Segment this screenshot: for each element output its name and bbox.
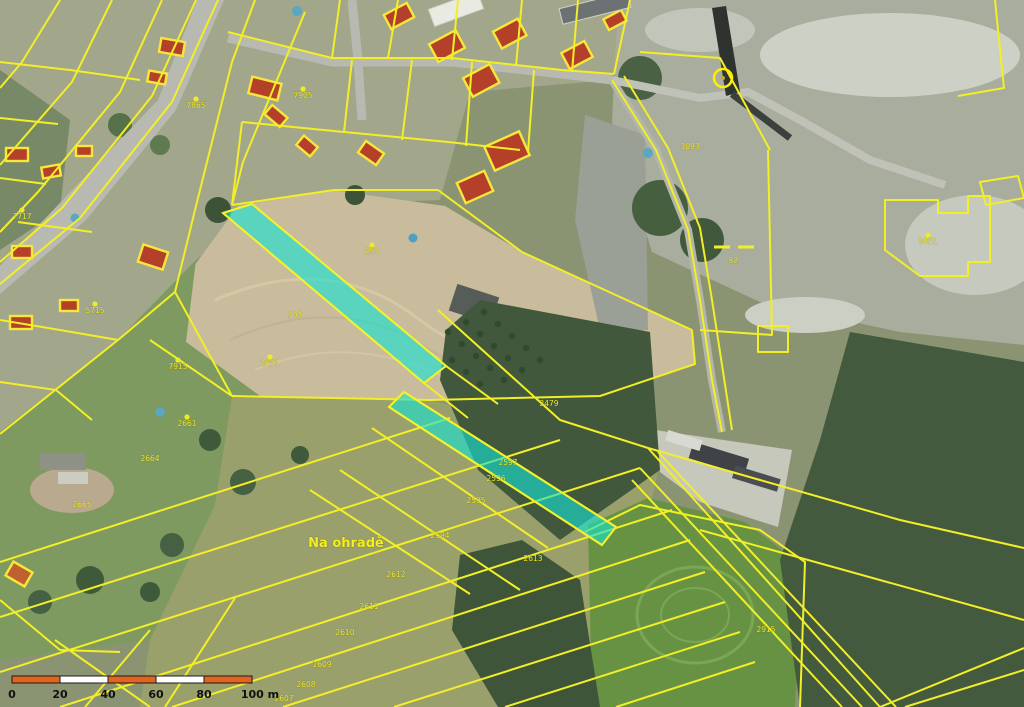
parcel-number-label: 2611 (359, 602, 378, 611)
parcel-number-label: 2915 (756, 625, 775, 634)
scale-bar-tick-label: 20 (52, 688, 68, 701)
parcel-number-label: 2664 (140, 454, 159, 463)
parcel-number-label: 2597 (498, 458, 517, 467)
aerial-photo-layer (0, 0, 1024, 707)
scale-bar-tick-label: 40 (100, 688, 116, 701)
scale-bar-unit-label: 100 m (241, 688, 279, 701)
parcel-number-label: 2596 (486, 474, 505, 483)
map-viewport[interactable]: 7865790577175715791525326312661266426653… (0, 0, 1024, 707)
field-name-label: Na ohradě (308, 536, 384, 551)
parcel-number-label: 7915 (168, 362, 187, 371)
parcel-number-label: 2609 (312, 660, 331, 669)
parcel-number-label: 5715 (85, 306, 104, 315)
parcel-number-label: 2594 (430, 531, 449, 540)
parcel-number-label: 7905 (293, 91, 312, 100)
scale-bar-segment (156, 676, 204, 683)
parcel-number-label: 3051 (918, 237, 937, 246)
parcel-number-label: 2608 (296, 680, 315, 689)
parcel-number-label: 7717 (12, 212, 31, 221)
parcel-number-label: 7865 (186, 101, 205, 110)
parcel-number-label: 2610 (335, 628, 354, 637)
parcel-number-label: 2595 (466, 496, 485, 505)
parcel-number-label: 253 (365, 247, 380, 256)
parcel-number-label: 2661 (177, 419, 196, 428)
parcel-number-label: 2612 (386, 570, 405, 579)
scale-bar-tick-label: 60 (148, 688, 164, 701)
cadastral-map[interactable]: 7865790577175715791525326312661266426653… (0, 0, 1024, 707)
parcel-number-label: 3093 (680, 142, 699, 151)
scale-bar-segment (60, 676, 108, 683)
parcel-number-label: 2479 (539, 399, 558, 408)
parcel-number-label: 92 (728, 256, 738, 265)
scale-bar-tick-label: 80 (196, 688, 212, 701)
scale-bar-segment (204, 676, 252, 683)
parcel-number-label: 2665 (72, 500, 91, 509)
parcel-number-label: 2631 (260, 359, 279, 368)
parcel-number-label: 2613 (523, 554, 542, 563)
scale-bar-segment (12, 676, 60, 683)
scale-bar-segment (108, 676, 156, 683)
scale-bar-tick-label: 0 (8, 688, 16, 701)
parcel-number-label: 303 (288, 311, 303, 320)
